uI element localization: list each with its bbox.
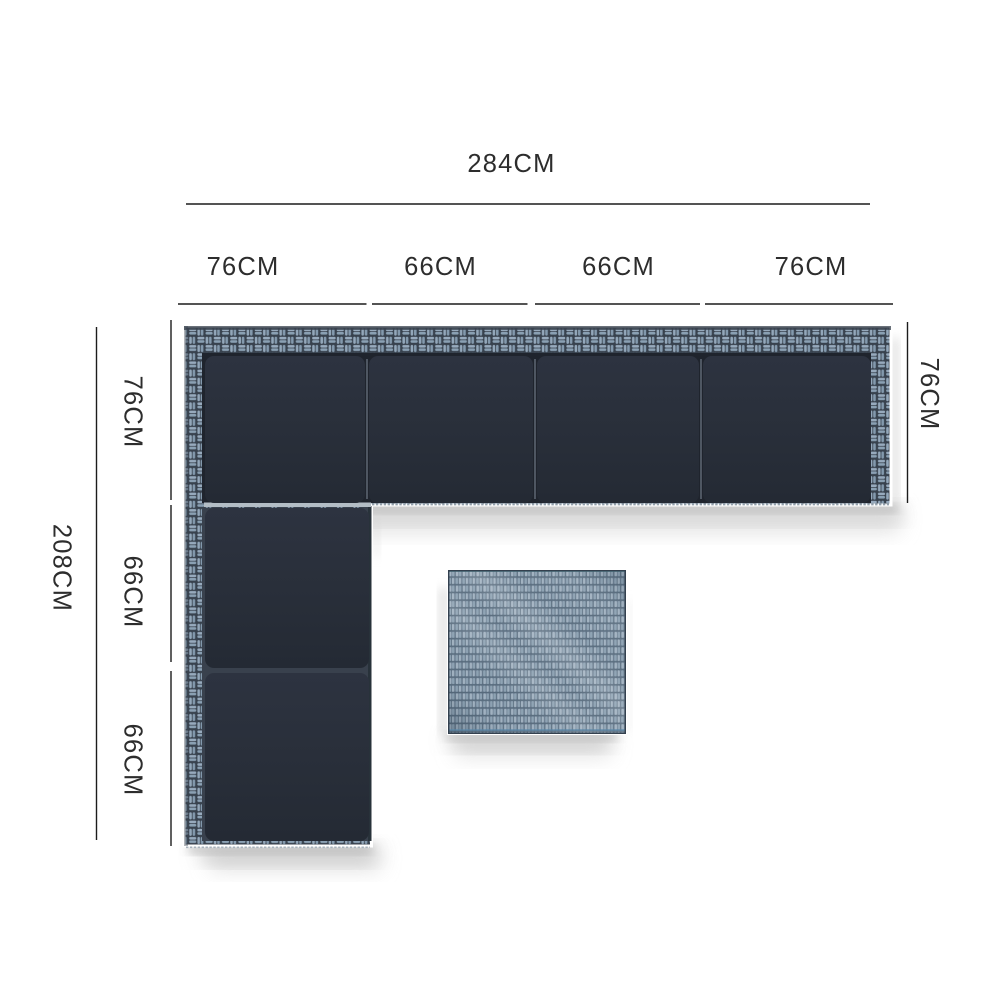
svg-text:208CM: 208CM <box>48 524 76 612</box>
svg-text:66CM: 66CM <box>119 556 147 629</box>
svg-text:76CM: 76CM <box>207 253 280 281</box>
svg-text:66CM: 66CM <box>119 724 147 797</box>
svg-text:66CM: 66CM <box>404 253 477 281</box>
svg-text:76CM: 76CM <box>915 358 943 431</box>
svg-text:76CM: 76CM <box>775 253 848 281</box>
svg-text:284CM: 284CM <box>467 150 555 178</box>
svg-text:76CM: 76CM <box>119 376 147 449</box>
svg-text:66CM: 66CM <box>582 253 655 281</box>
